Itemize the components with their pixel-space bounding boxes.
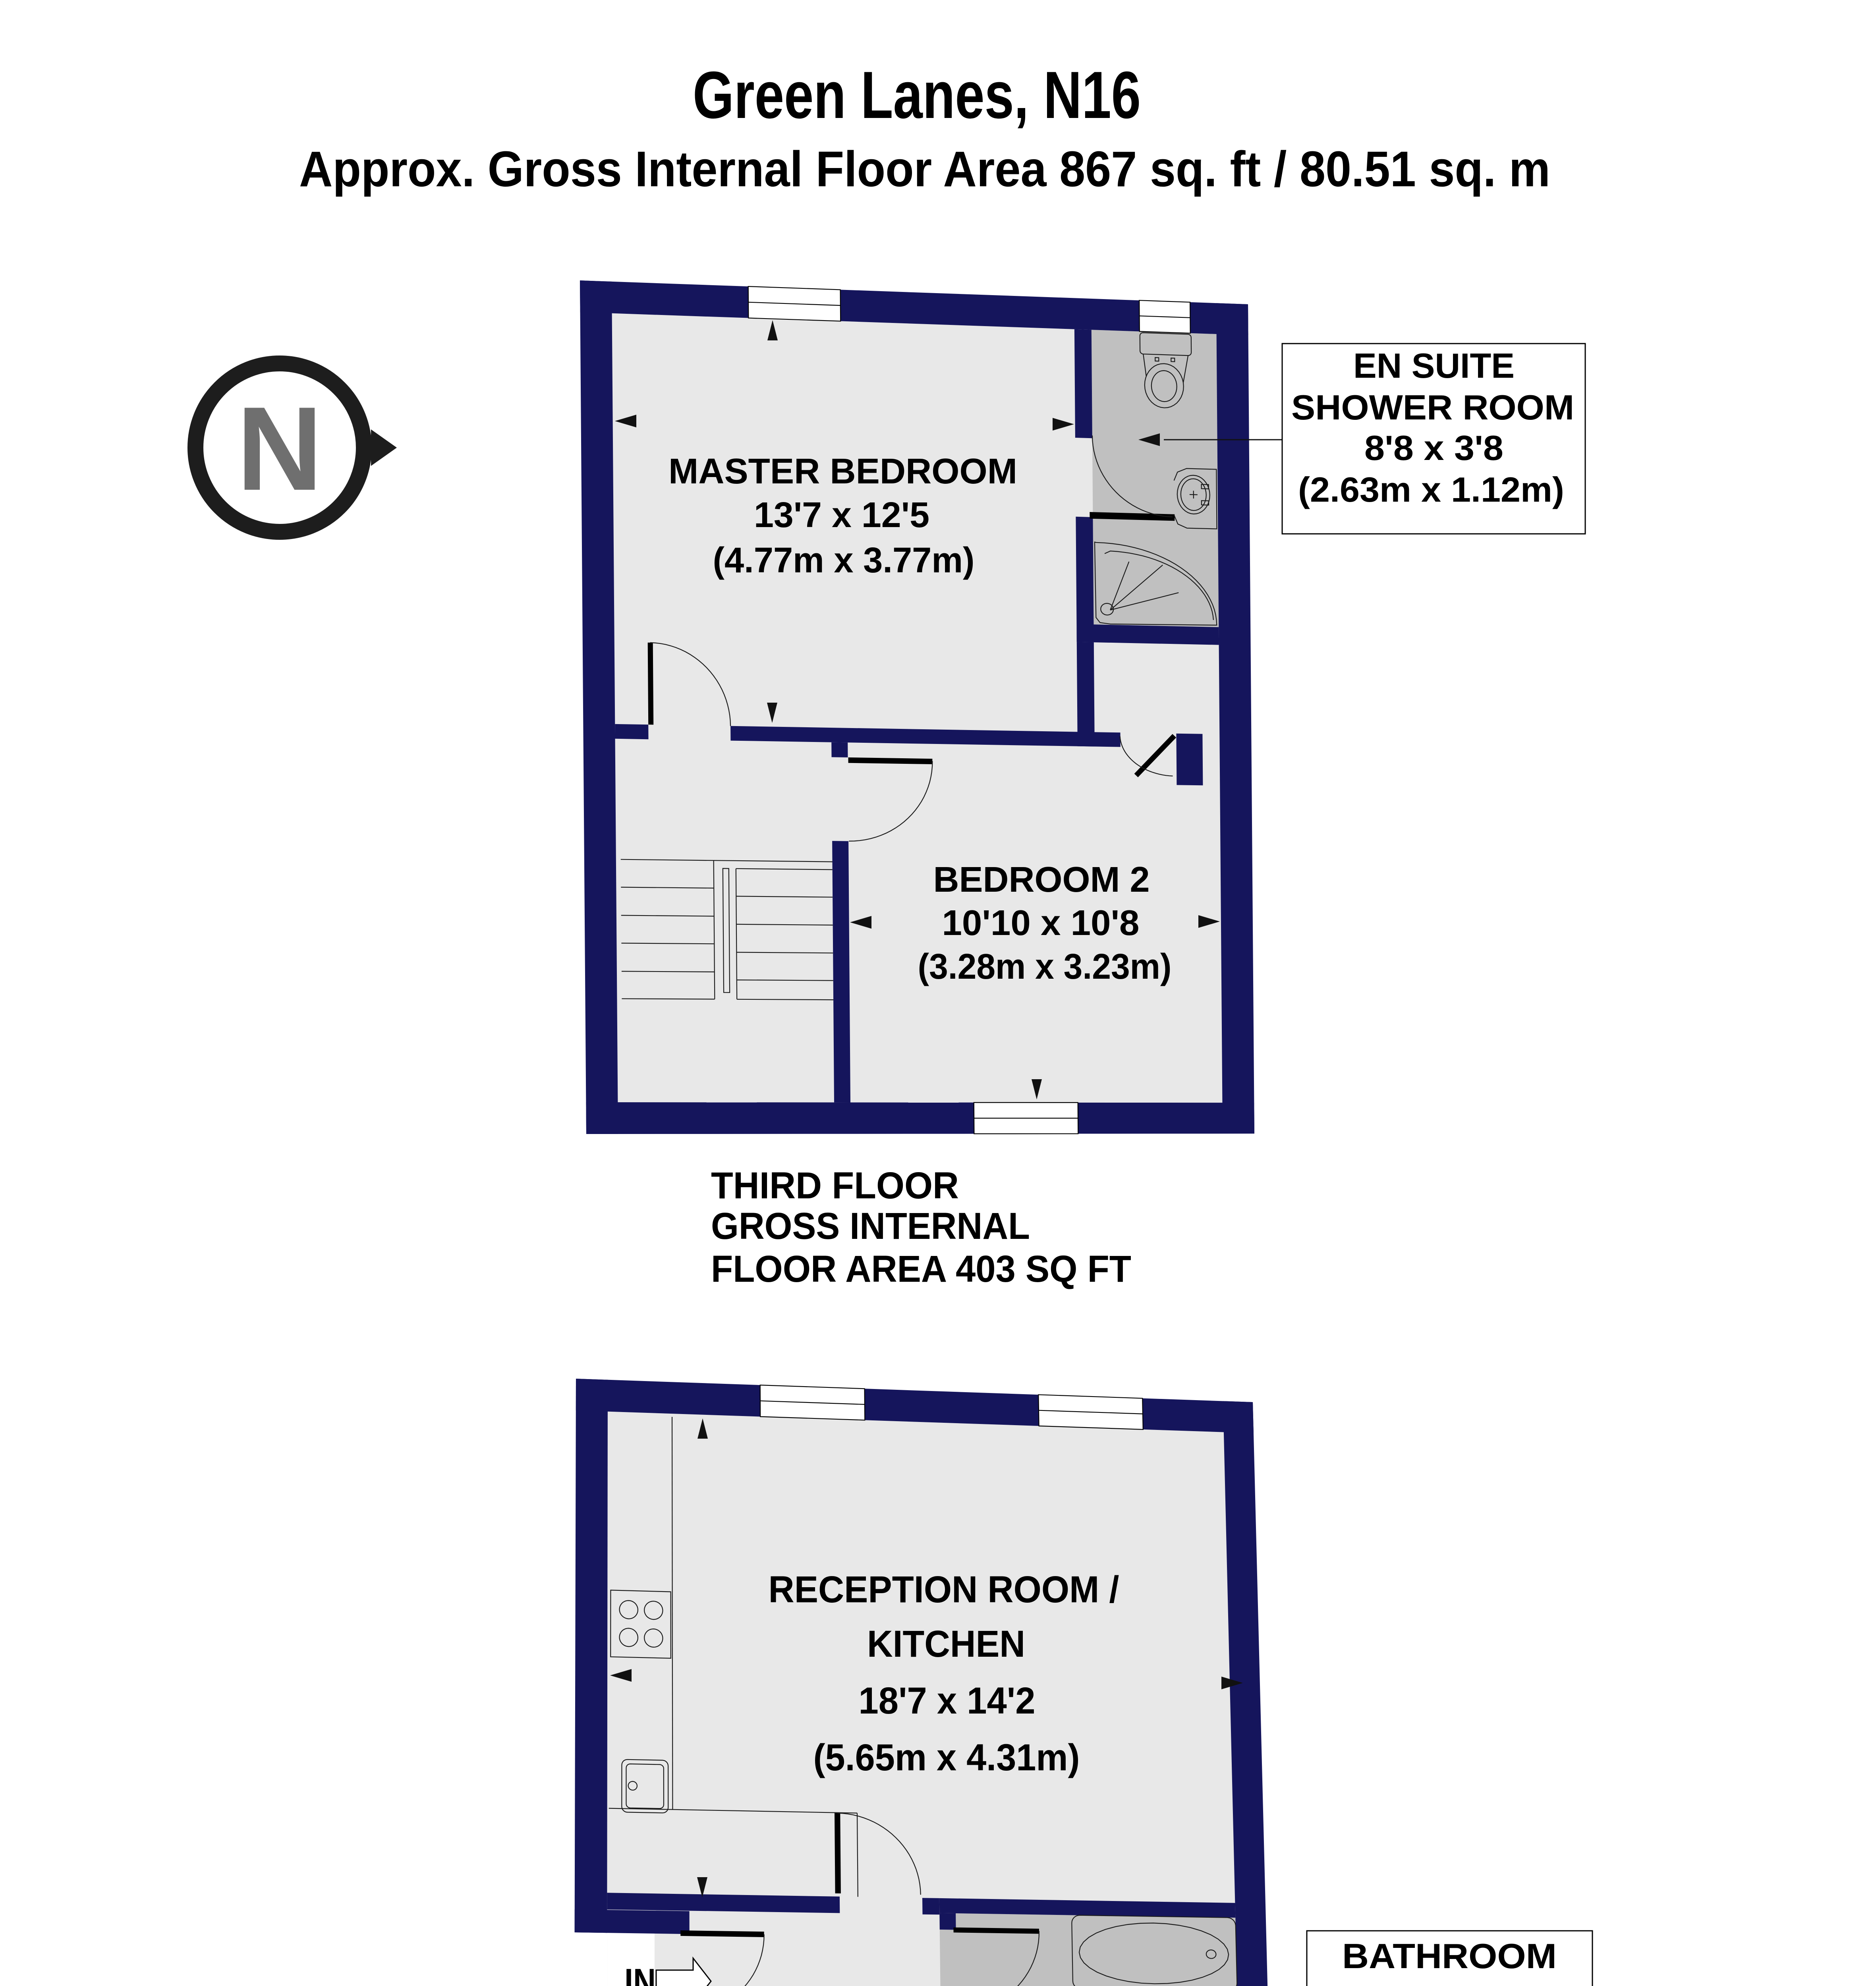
svg-text:(2.63m x 1.12m): (2.63m x 1.12m) [1298,470,1564,509]
svg-text:Approx. Gross Internal Floor A: Approx. Gross Internal Floor Area 867 sq… [299,141,1550,197]
svg-text:RECEPTION ROOM /: RECEPTION ROOM / [769,1569,1119,1611]
svg-text:8'5 x 4'3: 8'5 x 4'3 [1380,1981,1519,1986]
svg-text:(5.65m x 4.31m): (5.65m x 4.31m) [813,1737,1080,1779]
svg-text:KITCHEN: KITCHEN [867,1623,1025,1665]
svg-text:Green Lanes, N16: Green Lanes, N16 [693,58,1141,132]
svg-text:SHOWER ROOM: SHOWER ROOM [1291,388,1574,427]
svg-text:FLOOR AREA 403 SQ FT: FLOOR AREA 403 SQ FT [711,1248,1131,1290]
svg-text:(4.77m x 3.77m): (4.77m x 3.77m) [713,541,975,580]
svg-text:IN: IN [624,1961,656,1986]
svg-text:THIRD FLOOR: THIRD FLOOR [711,1165,959,1207]
svg-text:18'7 x 14'2: 18'7 x 14'2 [859,1680,1036,1722]
svg-text:(3.28m x 3.23m): (3.28m x 3.23m) [918,947,1172,987]
svg-text:8'8 x 3'8: 8'8 x 3'8 [1364,428,1503,468]
svg-text:BATHROOM: BATHROOM [1342,1936,1557,1976]
svg-text:EN SUITE: EN SUITE [1353,346,1515,385]
svg-text:BEDROOM 2: BEDROOM 2 [933,860,1150,900]
svg-text:13'7 x 12'5: 13'7 x 12'5 [754,495,929,535]
svg-text:N: N [237,382,323,515]
svg-text:GROSS INTERNAL: GROSS INTERNAL [711,1205,1030,1247]
svg-text:10'10 x 10'8: 10'10 x 10'8 [942,903,1140,943]
svg-text:MASTER BEDROOM: MASTER BEDROOM [668,452,1017,491]
